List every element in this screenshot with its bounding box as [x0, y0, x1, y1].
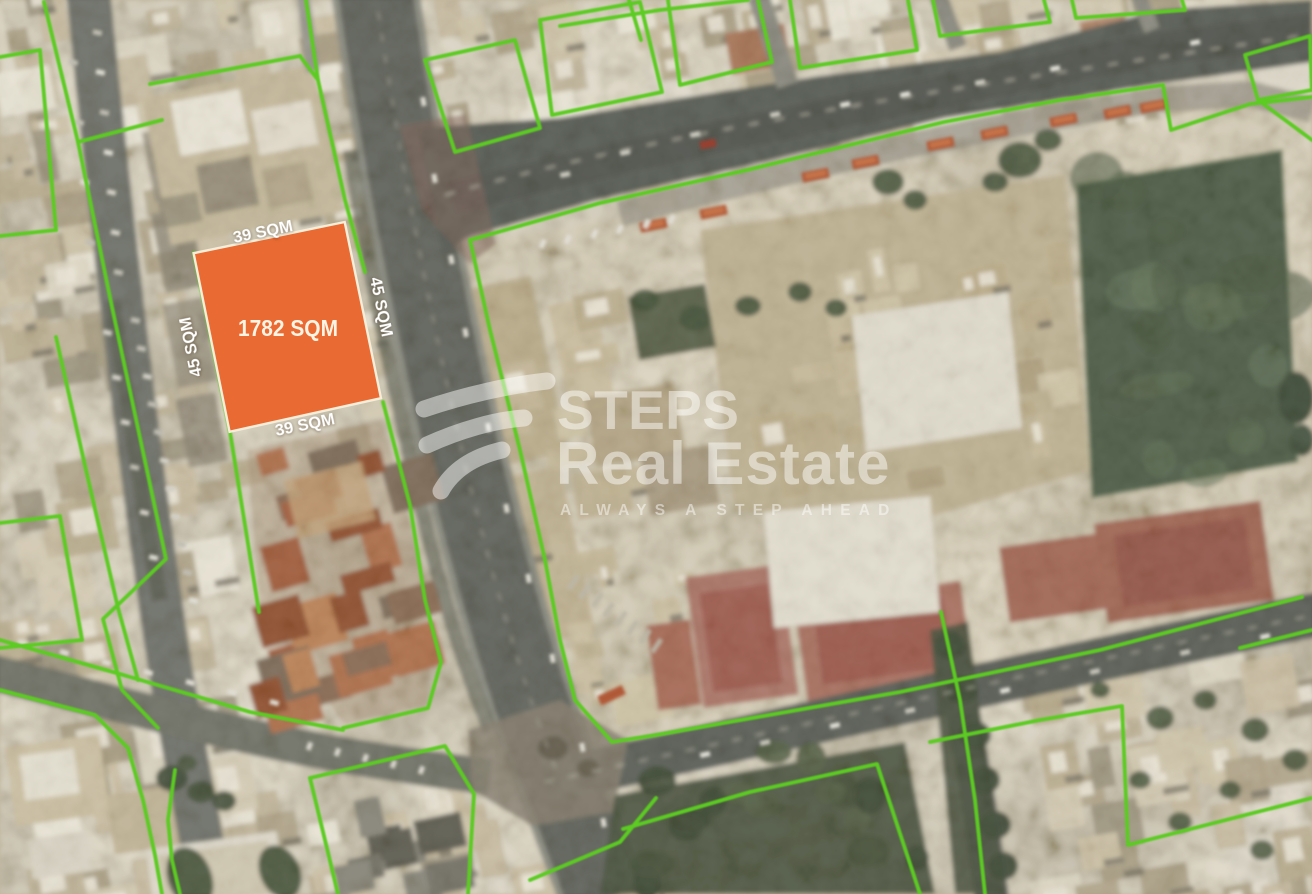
- svg-text:1782 SQM: 1782 SQM: [238, 315, 338, 341]
- svg-text:ALWAYS A STEP AHEAD: ALWAYS A STEP AHEAD: [560, 502, 898, 519]
- svg-text:Real Estate: Real Estate: [556, 430, 891, 497]
